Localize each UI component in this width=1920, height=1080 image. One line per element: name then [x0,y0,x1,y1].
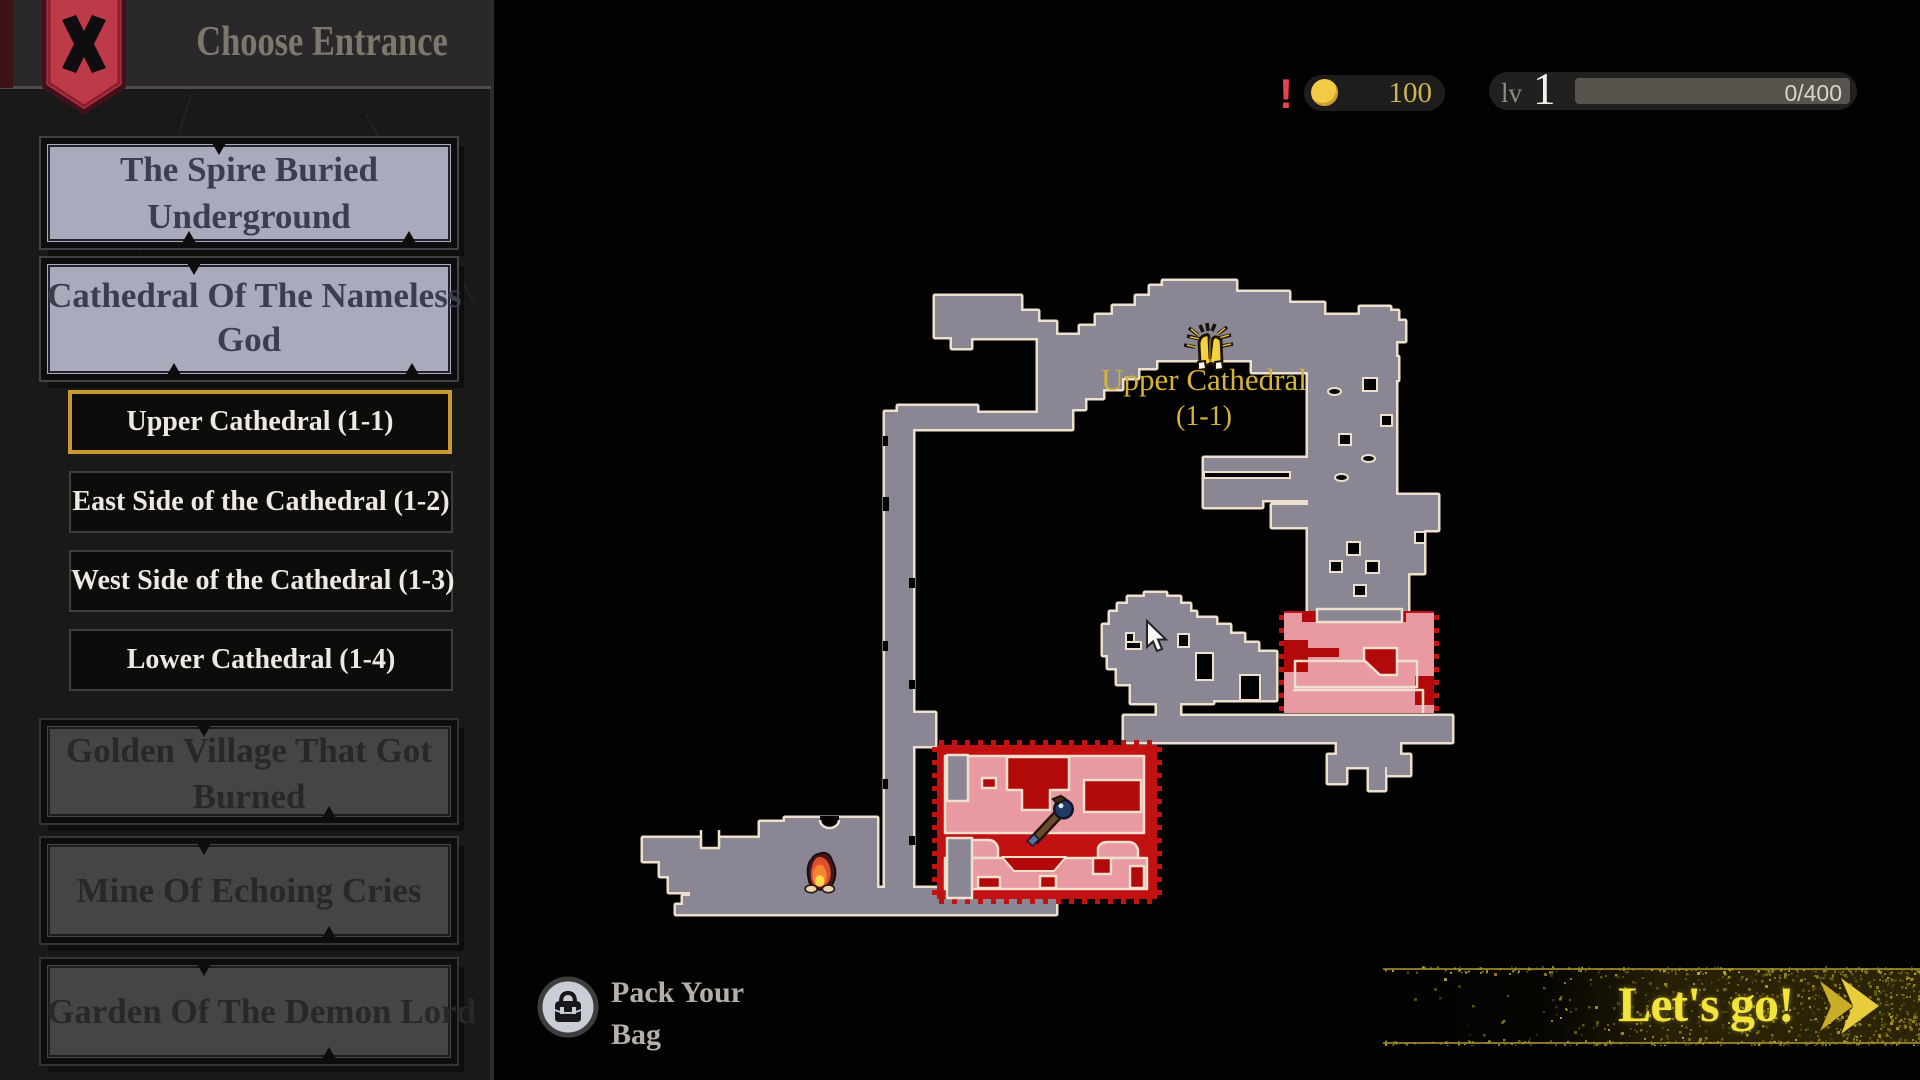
svg-text:Upper Cathedral: Upper Cathedral [1101,362,1307,397]
svg-text:(1-1): (1-1) [1176,401,1232,432]
